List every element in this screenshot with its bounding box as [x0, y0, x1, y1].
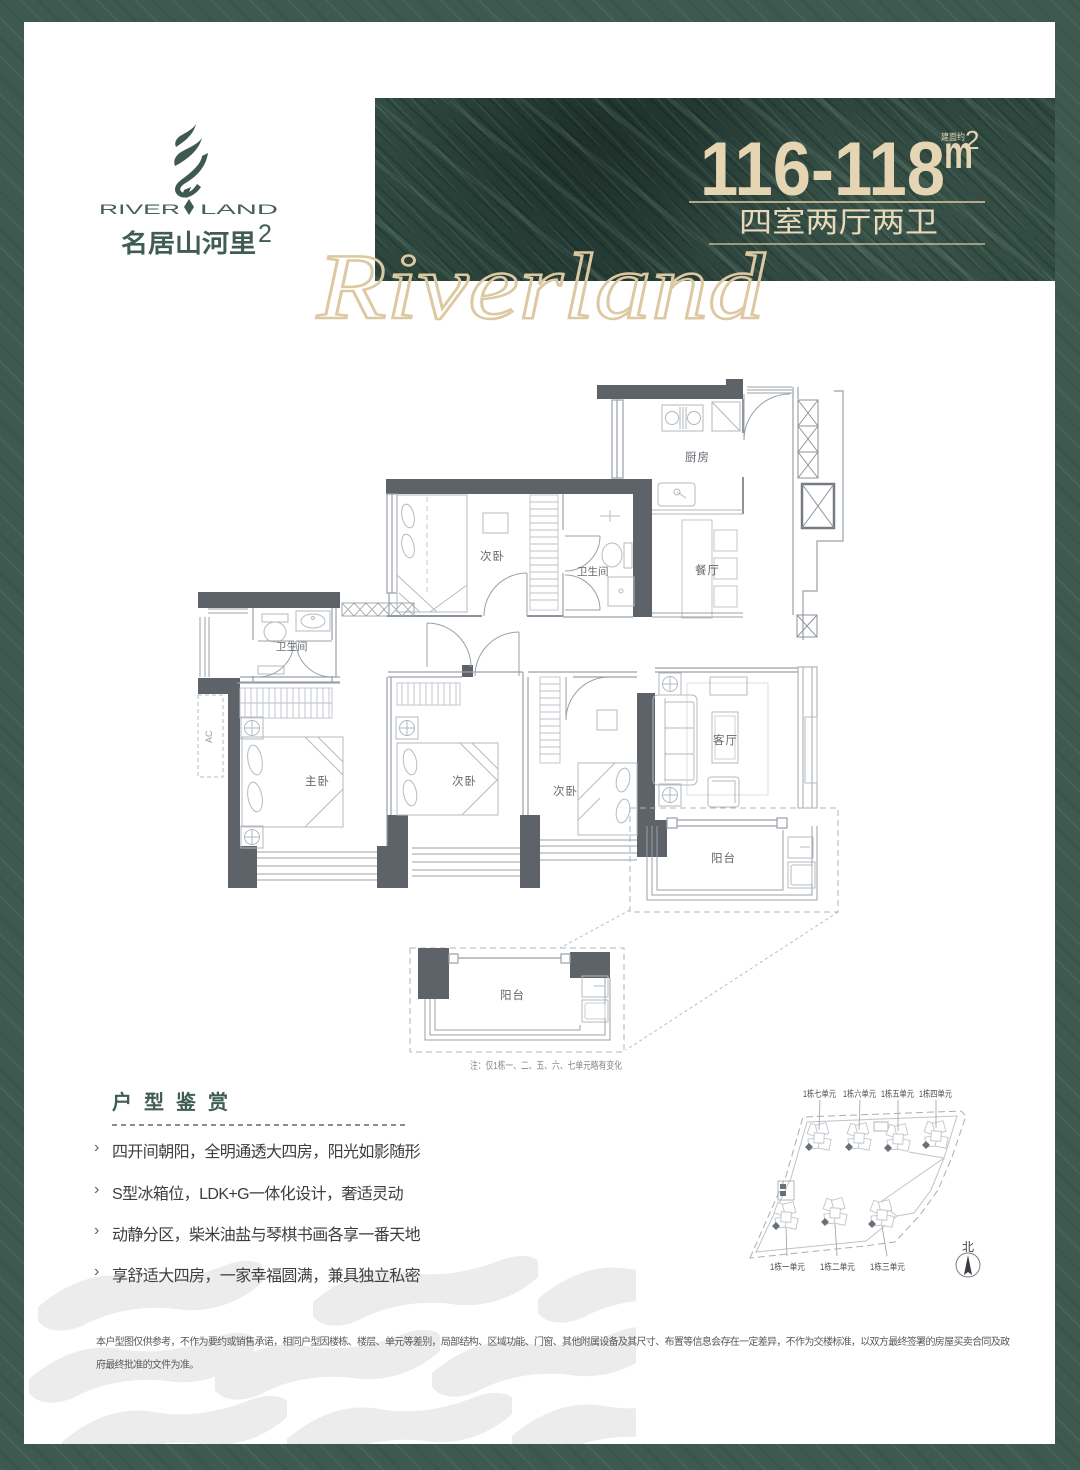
svg-text:LAND: LAND — [200, 201, 278, 217]
svg-text:主卧: 主卧 — [305, 775, 330, 788]
svg-text:阳台: 阳台 — [500, 988, 525, 1002]
svg-text:AC: AC — [204, 730, 214, 743]
svg-text:建面约: 建面约 — [941, 131, 965, 142]
svg-text:1栋三单元: 1栋三单元 — [870, 1261, 905, 1272]
svg-text:卫生间: 卫生间 — [577, 565, 609, 578]
svg-text:客厅: 客厅 — [713, 733, 738, 747]
svg-text:1栋五单元: 1栋五单元 — [881, 1088, 914, 1099]
svg-text:1栋二单元: 1栋二单元 — [820, 1261, 855, 1272]
svg-text:Riverland: Riverland — [316, 235, 766, 339]
svg-text:次卧: 次卧 — [452, 774, 477, 788]
svg-text:2: 2 — [258, 220, 272, 248]
svg-text:1栋四单元: 1栋四单元 — [919, 1088, 952, 1099]
svg-text:北: 北 — [962, 1240, 974, 1254]
svg-text:阳台: 阳台 — [711, 851, 736, 865]
svg-text:次卧: 次卧 — [553, 784, 578, 798]
svg-text:卫生间: 卫生间 — [276, 640, 308, 653]
svg-text:1栋六单元: 1栋六单元 — [843, 1088, 876, 1099]
svg-text:1栋七单元: 1栋七单元 — [803, 1088, 836, 1099]
svg-text:2: 2 — [965, 125, 979, 155]
svg-text:116-118: 116-118 — [700, 127, 945, 212]
svg-text:RIVER: RIVER — [99, 201, 180, 217]
svg-text:餐厅: 餐厅 — [695, 563, 720, 577]
svg-text:厨房: 厨房 — [685, 451, 710, 464]
svg-text:注：仅1栋一、二、五、六、七单元略有变化: 注：仅1栋一、二、五、六、七单元略有变化 — [470, 1059, 622, 1072]
svg-text:次卧: 次卧 — [480, 549, 505, 563]
svg-text:1栋一单元: 1栋一单元 — [770, 1261, 805, 1272]
svg-text:名居山河里: 名居山河里 — [121, 229, 256, 258]
